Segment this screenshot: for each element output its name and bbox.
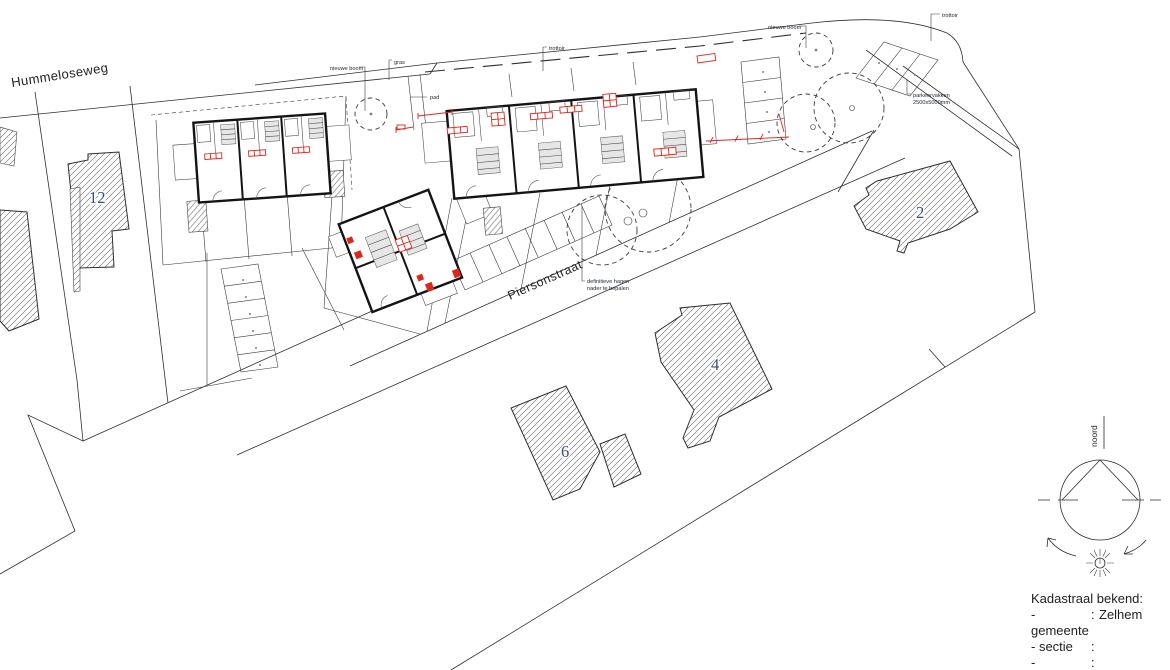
kadastraal-legend: Kadastraal bekend: - gemeente:Zelhem - s… [1031, 591, 1167, 670]
house-4-footprint [655, 303, 772, 448]
label-parkeervakken: parkeervakken [913, 93, 950, 99]
label-nieuwe-boom-2: nieuwe boom [768, 25, 802, 31]
sidewalk-dashed-line [425, 33, 806, 72]
site-plan: 12 2 4 6 [0, 0, 1170, 670]
kadastraal-row-sectie: - sectie: [1031, 639, 1167, 655]
street-name-piersonstraat: Piersonstraat [506, 257, 585, 302]
hedge-shrub-icon [624, 217, 632, 225]
house-number-12: 12 [89, 188, 106, 207]
label-parkeervakken-size: 2500x5000mm [913, 100, 950, 106]
parking-areas [221, 42, 938, 372]
parking-column-left [221, 264, 278, 372]
rotation-arrow-right [1124, 540, 1146, 554]
kadastraal-row-nummers: - nummer(s): [1031, 655, 1167, 670]
kadastraal-row-gemeente: - gemeente:Zelhem [1031, 607, 1167, 639]
label-nieuwe-boom-1: nieuwe boom [330, 66, 364, 72]
label-hagen-1: definitieve hagen [587, 279, 629, 285]
hedge-shrub-icon [639, 209, 647, 217]
parking-row-topright-diagonal [856, 42, 938, 96]
north-label: noord [1089, 425, 1099, 447]
label-pad: pad [430, 95, 439, 101]
label-trottoir-center: trottoir [549, 46, 565, 52]
parking-row-right-column [741, 57, 786, 144]
tree-icon [814, 73, 884, 143]
building-block-b [326, 190, 467, 329]
site-plan-drawing: 12 2 4 6 [0, 0, 1170, 670]
street-name-hummeloseweg: Hummeloseweg [10, 60, 109, 90]
house-number-2: 2 [916, 203, 924, 222]
label-hagen-2: nader te bepalen [587, 286, 629, 292]
house-6-annex [600, 434, 641, 487]
building-block-a [171, 112, 355, 233]
tree-icon [777, 94, 835, 152]
kadastraal-title: Kadastraal bekend: [1031, 591, 1167, 607]
rotation-arrow-left [1047, 538, 1076, 556]
label-gras: gras [394, 60, 405, 66]
label-trottoir-right: trottoir [942, 13, 958, 19]
partial-building-topleft [0, 127, 17, 166]
house-number-4: 4 [711, 355, 719, 374]
sun-icon [1086, 549, 1114, 577]
partial-building-left [0, 210, 39, 331]
house-6-footprint [511, 386, 600, 500]
house-number-6: 6 [561, 442, 569, 461]
north-arrow: noord [1038, 416, 1161, 577]
partial-building-left-sliver [70, 187, 80, 292]
